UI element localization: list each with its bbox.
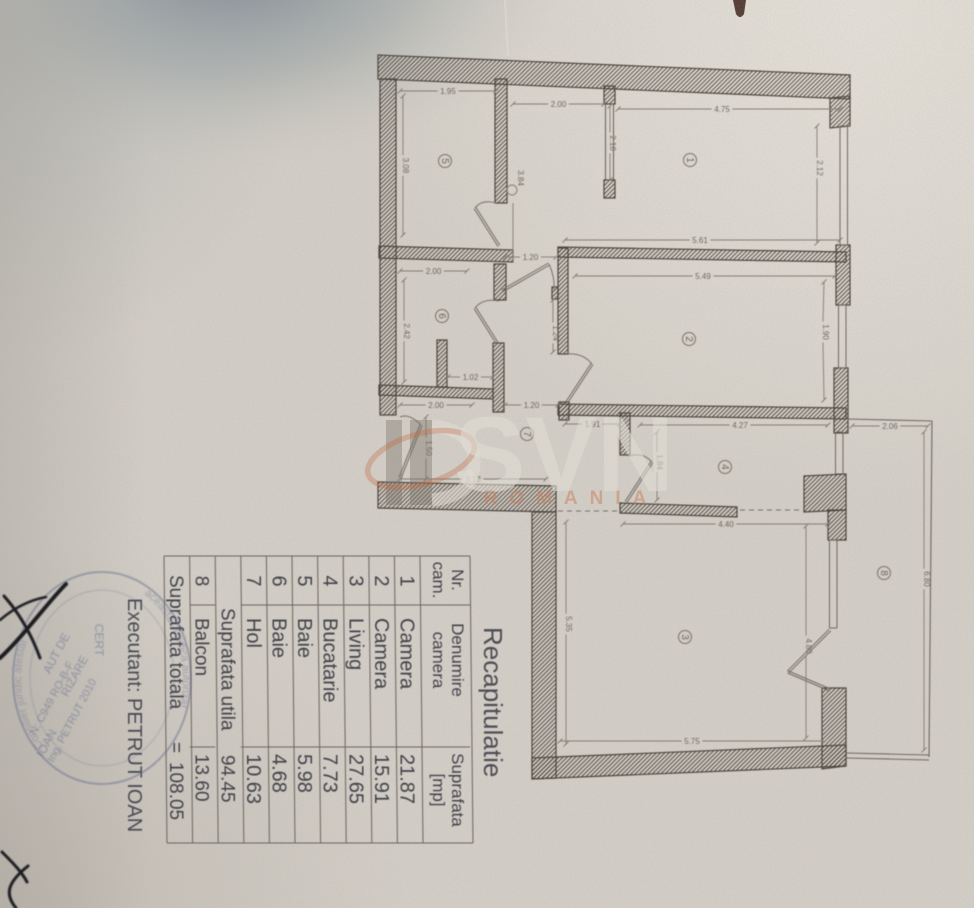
svg-text:4: 4 — [719, 464, 730, 470]
svg-text:Balcon: Balcon — [191, 618, 212, 676]
svg-text:CERT: CERT — [92, 624, 106, 657]
svg-text:27.65: 27.65 — [344, 754, 366, 804]
svg-text:5: 5 — [293, 575, 315, 586]
svg-text:3.08: 3.08 — [401, 158, 410, 174]
svg-text:13.60: 13.60 — [191, 754, 212, 802]
svg-text:2.12: 2.12 — [815, 160, 824, 176]
svg-text:2.06: 2.06 — [882, 422, 898, 431]
svg-text:2: 2 — [683, 336, 694, 342]
svg-text:Camera: Camera — [396, 618, 418, 690]
svg-text:108.05: 108.05 — [165, 762, 186, 820]
svg-text:8: 8 — [878, 570, 889, 576]
svg-text:7.73: 7.73 — [319, 754, 341, 793]
svg-text:4.68: 4.68 — [268, 754, 290, 793]
svg-text:1.20: 1.20 — [523, 253, 539, 262]
svg-text:1: 1 — [396, 575, 418, 586]
svg-text:5.49: 5.49 — [695, 272, 711, 281]
svg-text:6: 6 — [268, 575, 290, 586]
svg-text:6: 6 — [436, 313, 447, 319]
svg-text:2.00: 2.00 — [551, 100, 567, 109]
svg-text:Suprafata utila: Suprafata utila — [216, 608, 237, 731]
svg-text:5: 5 — [439, 158, 450, 164]
svg-text:2.00: 2.00 — [426, 267, 442, 276]
svg-text:4.75: 4.75 — [714, 105, 730, 114]
svg-text:15.91: 15.91 — [370, 754, 392, 804]
svg-text:2.42: 2.42 — [402, 323, 411, 339]
svg-text:2.18: 2.18 — [608, 135, 617, 151]
svg-text:1.02: 1.02 — [463, 373, 479, 382]
svg-text:Baie: Baie — [268, 618, 290, 658]
svg-text:4.80: 4.80 — [804, 638, 813, 654]
svg-text:Suprafata: Suprafata — [448, 753, 467, 827]
svg-text:4.27: 4.27 — [732, 421, 748, 430]
svg-text:7: 7 — [242, 575, 264, 586]
svg-text:8: 8 — [191, 576, 212, 587]
svg-text:Baie: Baie — [293, 618, 315, 658]
svg-text:4.40: 4.40 — [718, 520, 734, 529]
svg-text:Denumire: Denumire — [448, 623, 467, 697]
svg-text:10.63: 10.63 — [242, 754, 264, 804]
svg-text:5.35: 5.35 — [564, 616, 573, 632]
svg-text:21.87: 21.87 — [396, 754, 418, 804]
svg-text:Recapitulatie: Recapitulatie — [478, 627, 508, 777]
svg-text:6.80: 6.80 — [922, 571, 931, 587]
svg-text:5.75: 5.75 — [684, 737, 700, 746]
svg-text:cam.: cam. — [429, 562, 448, 599]
svg-text:[mp]: [mp] — [429, 773, 448, 806]
svg-text:Camera: Camera — [370, 618, 392, 690]
svg-text:3.84: 3.84 — [516, 170, 525, 186]
svg-text:1: 1 — [684, 157, 695, 163]
svg-text:5.98: 5.98 — [293, 754, 315, 793]
svg-text:5.61: 5.61 — [692, 236, 708, 245]
svg-text:3: 3 — [344, 575, 366, 586]
svg-text:4: 4 — [319, 575, 341, 586]
svg-text:camera: camera — [429, 632, 448, 689]
svg-text:Nr.: Nr. — [448, 569, 467, 591]
svg-text:2.00: 2.00 — [428, 401, 444, 410]
svg-text:Executant: PETRUT IOAN: Executant: PETRUT IOAN — [123, 598, 145, 832]
svg-text:1.90: 1.90 — [821, 324, 830, 340]
svg-text:1.95: 1.95 — [440, 87, 456, 96]
svg-text:ROMANIA: ROMANIA — [484, 488, 659, 509]
svg-text:Bucatarie: Bucatarie — [319, 618, 341, 703]
svg-text:Hol: Hol — [242, 618, 264, 648]
svg-text:Living: Living — [344, 618, 366, 670]
svg-text:3: 3 — [679, 634, 690, 640]
svg-text:1.24: 1.24 — [551, 325, 560, 341]
svg-text:94.45: 94.45 — [216, 755, 237, 803]
svg-text:2: 2 — [370, 575, 392, 586]
